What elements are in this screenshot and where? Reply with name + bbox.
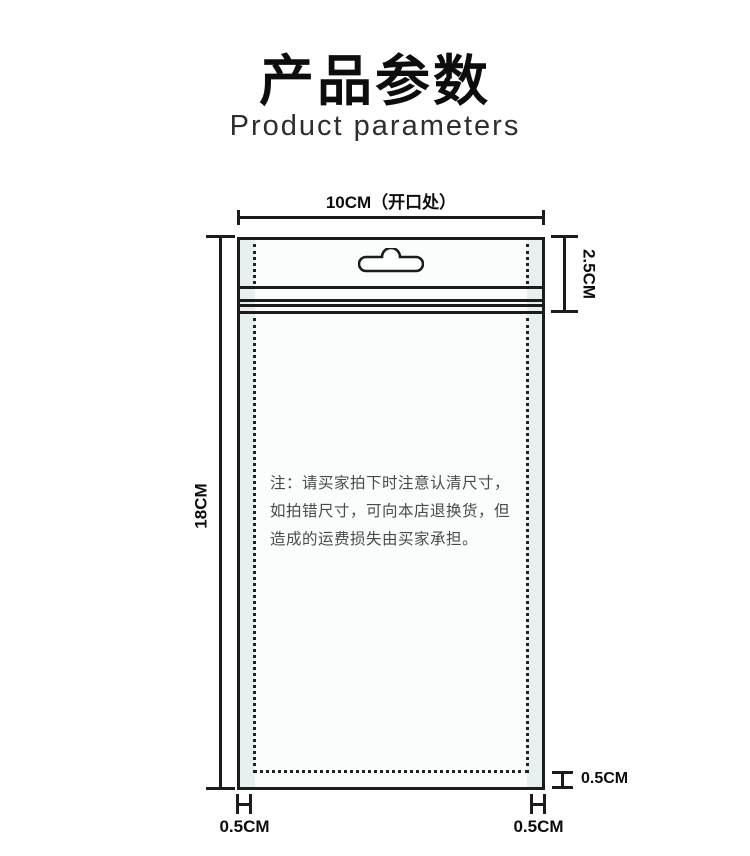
right-seal-bar xyxy=(530,803,546,806)
page-subtitle: Product parameters xyxy=(0,110,750,143)
right-dim-line xyxy=(563,237,566,313)
page-title: 产品参数 xyxy=(0,36,750,116)
zipper-track xyxy=(240,299,542,307)
right-seal-label: 0.5CM xyxy=(496,817,581,837)
opening-width-label: 10CM（开口处） xyxy=(237,188,545,213)
left-seal-label: 0.5CM xyxy=(202,817,287,837)
bottom-seal-bottom-tick xyxy=(552,786,573,789)
bag-diagram: 注：请买家拍下时注意认清尺寸， 如拍错尺寸，可向本店退换货，但 造成的运费损失由… xyxy=(237,237,545,790)
top-dim-left-tick xyxy=(237,210,240,225)
size-note-line: 如拍错尺寸，可向本店退换货，但 xyxy=(270,498,525,526)
header-seal-dots-left xyxy=(253,244,256,284)
header-seal-dots-right xyxy=(526,244,529,284)
left-dim-top-tick xyxy=(206,235,235,238)
product-parameters-page: 产品参数 Product parameters 10CM（开口处） 18CM 2… xyxy=(0,0,750,856)
top-dim-right-tick xyxy=(542,210,545,225)
zipper xyxy=(240,286,542,314)
left-dim-line xyxy=(219,237,222,790)
left-seal-bar xyxy=(236,803,252,806)
size-note-line: 注：请买家拍下时注意认清尺寸， xyxy=(270,470,525,498)
left-dim-bottom-tick xyxy=(206,787,235,790)
right-dim-bottom-tick xyxy=(551,310,578,313)
right-dim-top-tick xyxy=(551,235,578,238)
euro-hang-hole-icon xyxy=(358,248,424,274)
bottom-seal-label: 0.5CM xyxy=(581,770,628,788)
size-note: 注：请买家拍下时注意认清尺寸， 如拍错尺寸，可向本店退换货，但 造成的运费损失由… xyxy=(270,470,525,554)
top-dim-line xyxy=(237,216,545,219)
size-note-line: 造成的运费损失由买家承担。 xyxy=(270,526,525,554)
bag-height-label: 18CM xyxy=(192,464,214,549)
header-height-label: 2.5CM xyxy=(577,232,599,317)
bottom-seal-top-tick xyxy=(552,771,573,774)
